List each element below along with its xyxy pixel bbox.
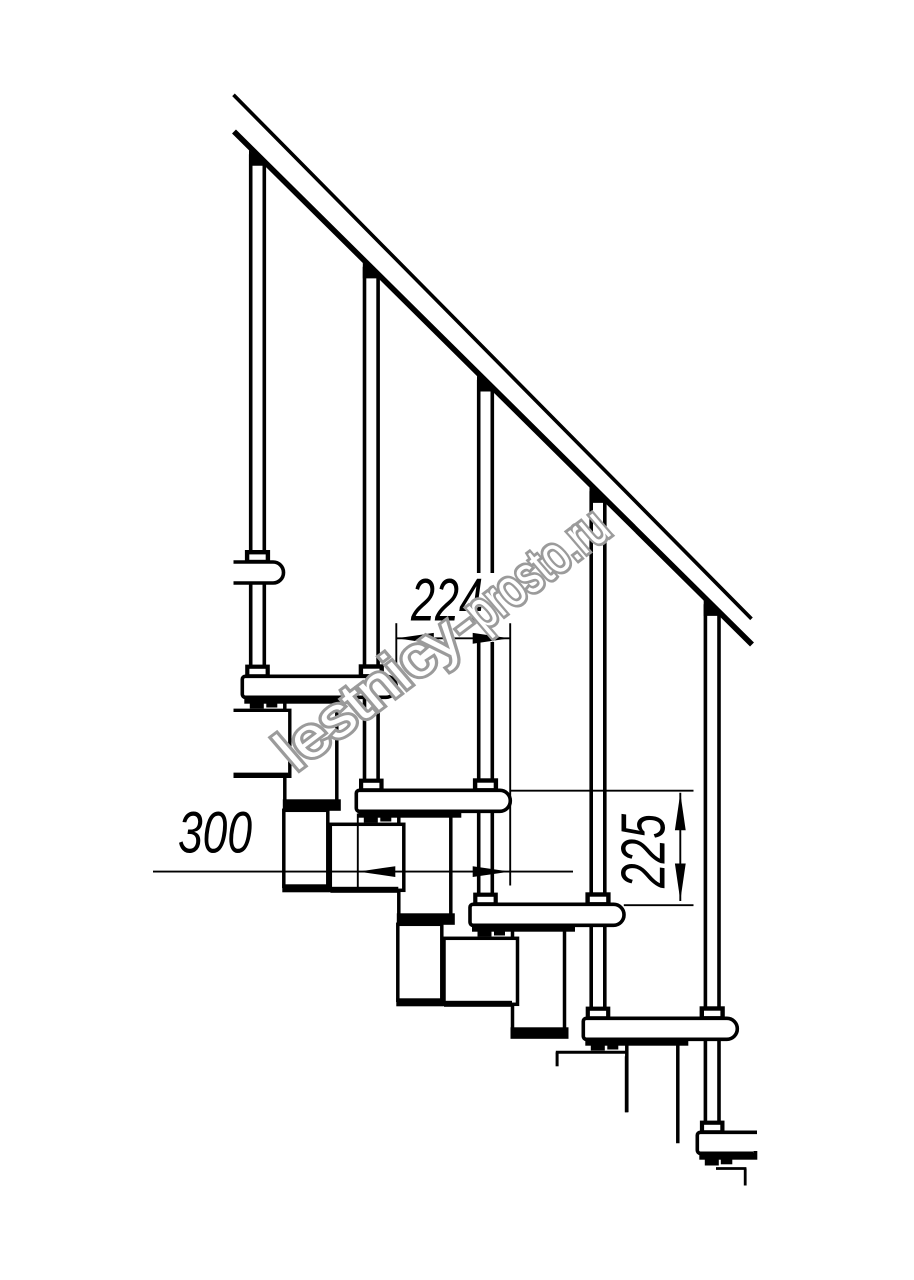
svg-text:225: 225: [610, 814, 679, 889]
svg-text:300: 300: [178, 801, 252, 866]
